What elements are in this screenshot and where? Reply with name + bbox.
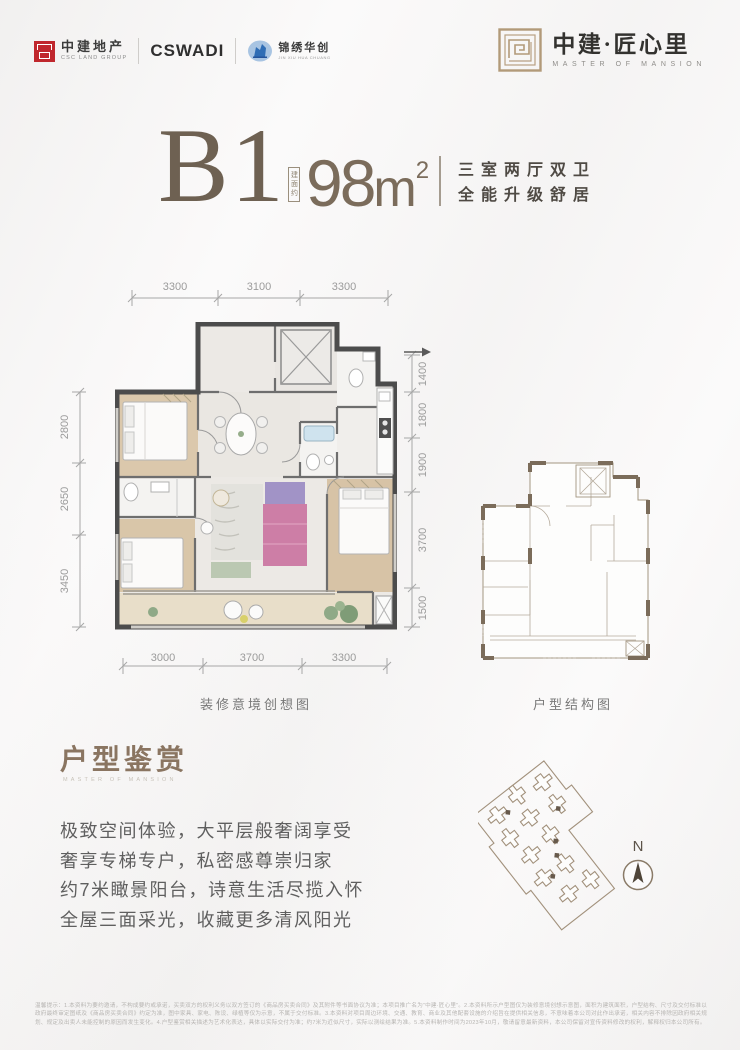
dim-label: 3300: [332, 281, 356, 293]
dimensions-bottom: 3000 3700 3300: [105, 648, 405, 678]
dim-label: 3450: [59, 569, 71, 593]
jinxiu-logo-sub: JIN XIU HUA CHUANG: [278, 56, 330, 60]
dim-label: 3300: [332, 652, 356, 664]
header-logos: 中建地产 CSC LAND GROUP CSWADI 锦绣华创 JIN XIU …: [34, 38, 331, 64]
unit-description: 三室两厅双卫 全能升级舒居: [458, 158, 596, 208]
appreciation-text: 极致空间体验，大平层般奢阔享受 奢享专梯专户，私密感尊崇归家 约7米瞰景阳台，诗…: [60, 817, 364, 935]
bed: [123, 402, 187, 460]
section-title: 户型鉴赏: [60, 738, 188, 778]
bed: [121, 538, 183, 588]
elevator-icon: [281, 330, 331, 384]
area-unit: m: [373, 160, 415, 218]
csc-red-emblem-icon: [34, 41, 55, 62]
appreciation-line: 约7米瞰景阳台，诗意生活尽揽入怀: [60, 876, 364, 906]
bed: [339, 488, 389, 554]
unit-area: 98m2: [306, 150, 429, 219]
area-value: 98: [306, 146, 373, 220]
dimensions-left: 2800 2650 3450: [56, 385, 86, 637]
kitchen-counter: [377, 388, 393, 474]
brand-name: 中建·匠心里: [552, 32, 706, 57]
logo-divider: [138, 38, 139, 64]
csc-logo-sub: CSC LAND GROUP: [61, 56, 127, 62]
csc-land-group-logo: 中建地产 CSC LAND GROUP: [34, 40, 127, 62]
floorplan-caption: 装修意境创想图: [115, 694, 397, 713]
brand-subtitle: MASTER OF MANSION: [552, 61, 706, 68]
logo-divider: [235, 38, 236, 64]
jinxiu-globe-icon: [247, 39, 273, 63]
cswadi-logo: CSWADI: [150, 41, 224, 61]
compass-north-label: N: [633, 838, 644, 855]
compass-icon: N: [616, 836, 660, 898]
unit-desc-line1: 三室两厅双卫: [458, 158, 596, 183]
appreciation-line: 全屋三面采光，收藏更多清风阳光: [60, 906, 364, 936]
site-plan: [478, 748, 633, 953]
dim-label: 1500: [417, 596, 429, 620]
dim-label: 1400: [417, 362, 429, 386]
jinxiu-logo: 锦绣华创 JIN XIU HUA CHUANG: [247, 39, 330, 63]
unit-name: B1: [158, 113, 286, 219]
csc-logo-name: 中建地产: [61, 40, 127, 53]
section-subtitle: MASTER OF MANSION: [63, 777, 177, 783]
structure-diagram: [480, 460, 668, 678]
dim-label: 1800: [417, 403, 429, 427]
appreciation-line: 奢享专梯专户，私密感尊崇归家: [60, 847, 364, 877]
unit-desc-line2: 全能升级舒居: [458, 183, 596, 208]
dimensions-top: 3300 3100 3300: [110, 276, 410, 306]
floorplan-rendering: [115, 322, 397, 634]
dim-label: 2800: [59, 415, 71, 439]
dim-label: 3700: [417, 528, 429, 552]
brand-seal-icon: [498, 28, 542, 72]
area-exponent: 2: [416, 157, 429, 184]
brand-lockup: 中建·匠心里 MASTER OF MANSION: [498, 28, 706, 72]
dim-label: 3700: [240, 652, 264, 664]
dimensions-right: 1400 1800 1900 3700 1500: [402, 348, 436, 636]
appreciation-line: 极致空间体验，大平层般奢阔享受: [60, 817, 364, 847]
disclaimer-text: 温馨提示：1.本资料为要约邀请，不构成要约或承诺，买卖双方的权利义务以双方签订的…: [35, 1002, 707, 1027]
structure-caption: 户型结构图: [478, 694, 668, 713]
dim-label: 1900: [417, 453, 429, 477]
title-divider: [439, 156, 441, 206]
utility-box: [376, 596, 392, 624]
dim-label: 3000: [151, 652, 175, 664]
jinxiu-logo-name: 锦绣华创: [278, 43, 330, 54]
dim-label: 3100: [247, 281, 271, 293]
entry-arrow-icon: [404, 346, 432, 358]
dim-label: 2650: [59, 487, 71, 511]
dim-label: 3300: [163, 281, 187, 293]
area-approx-label: 建面约: [288, 167, 300, 202]
poster-page: 中建地产 CSC LAND GROUP CSWADI 锦绣华创 JIN XIU …: [0, 0, 740, 1050]
